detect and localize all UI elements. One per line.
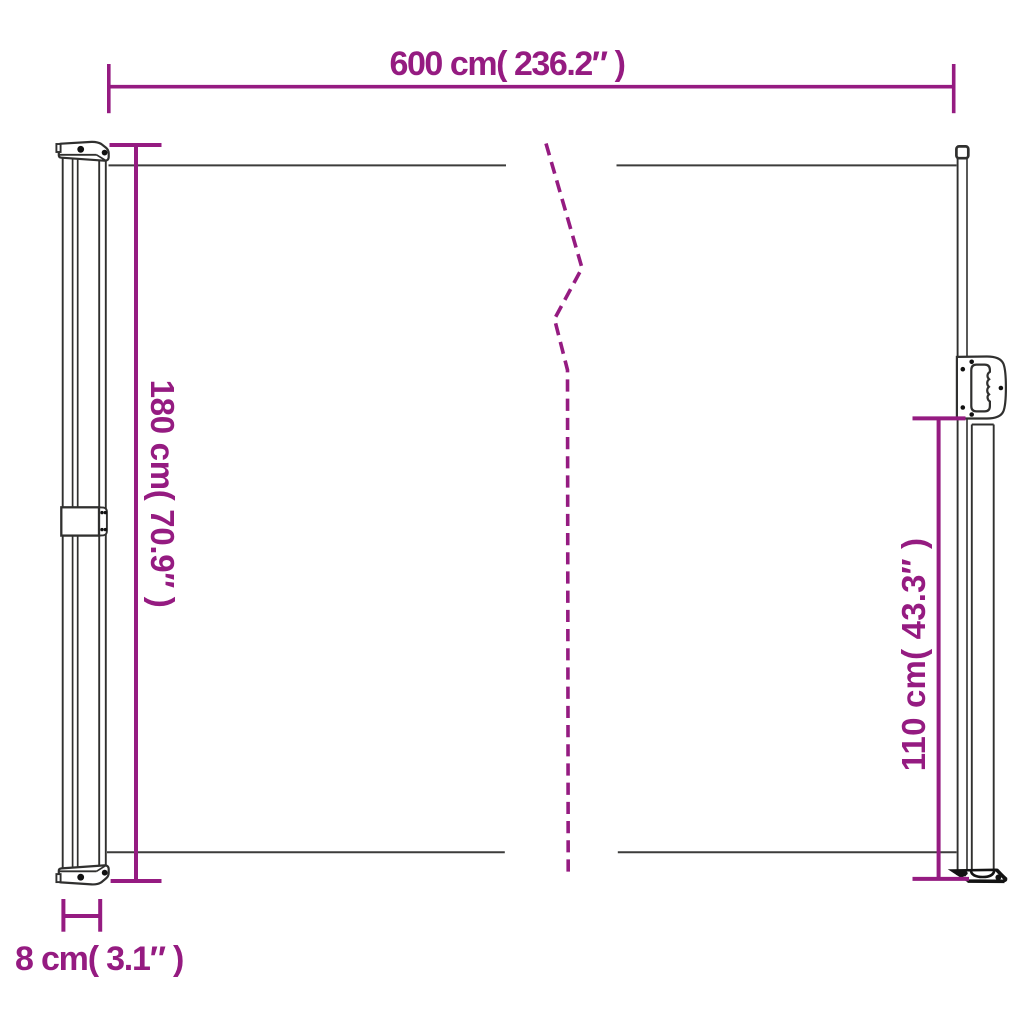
svg-text:600 cm( 236.2″ ): 600 cm( 236.2″ ) (389, 45, 624, 83)
svg-text:8 cm( 3.1″ ): 8 cm( 3.1″ ) (15, 940, 183, 978)
svg-text:110 cm( 43.3″ ): 110 cm( 43.3″ ) (895, 538, 932, 771)
svg-text:180 cm( 70.9″ ): 180 cm( 70.9″ ) (144, 380, 181, 608)
